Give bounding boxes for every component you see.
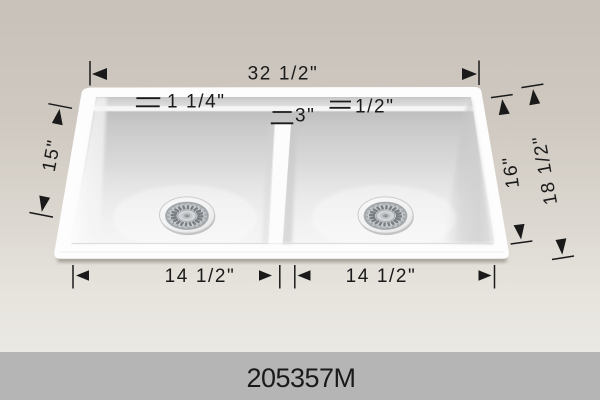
svg-text:32 1/2": 32 1/2" [248, 64, 319, 85]
svg-text:1 1/4": 1 1/4" [167, 92, 226, 113]
svg-text:14 1/2": 14 1/2" [346, 266, 417, 287]
svg-text:1/2": 1/2" [355, 97, 395, 118]
svg-text:16": 16" [499, 154, 524, 189]
svg-text:205357M: 205357M [246, 363, 355, 393]
svg-text:14 1/2": 14 1/2" [165, 266, 236, 287]
svg-text:3": 3" [295, 106, 316, 127]
